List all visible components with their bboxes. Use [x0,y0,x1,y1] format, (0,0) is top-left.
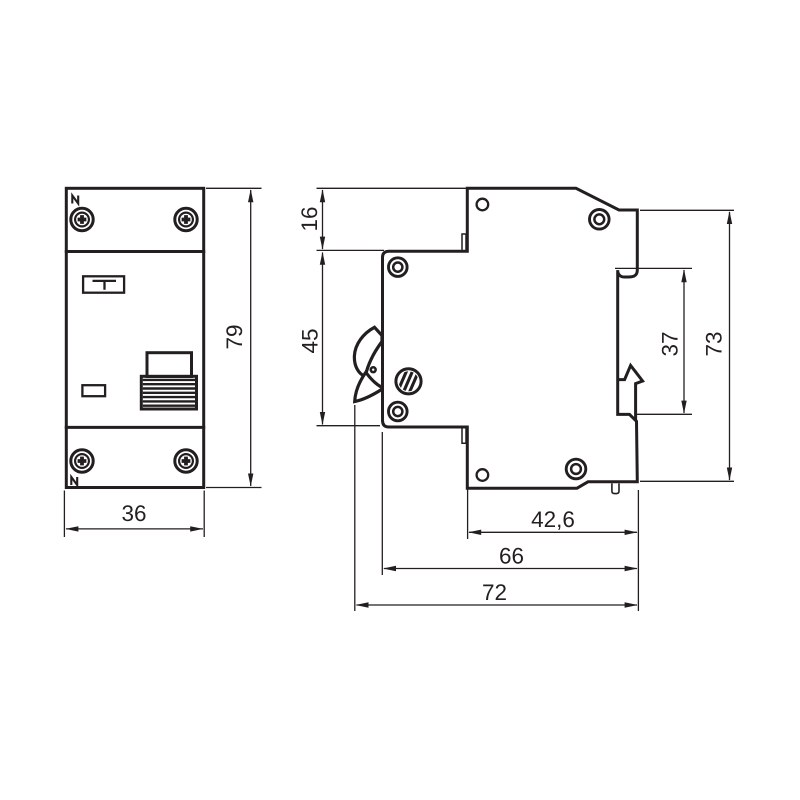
svg-text:66: 66 [499,544,524,569]
svg-text:36: 36 [121,501,146,526]
svg-text:79: 79 [222,324,247,349]
svg-text:73: 73 [702,331,727,356]
svg-text:72: 72 [482,580,507,605]
svg-text:37: 37 [658,331,683,356]
svg-text:42,6: 42,6 [531,507,575,532]
svg-text:16: 16 [297,206,322,231]
svg-text:45: 45 [298,328,323,353]
